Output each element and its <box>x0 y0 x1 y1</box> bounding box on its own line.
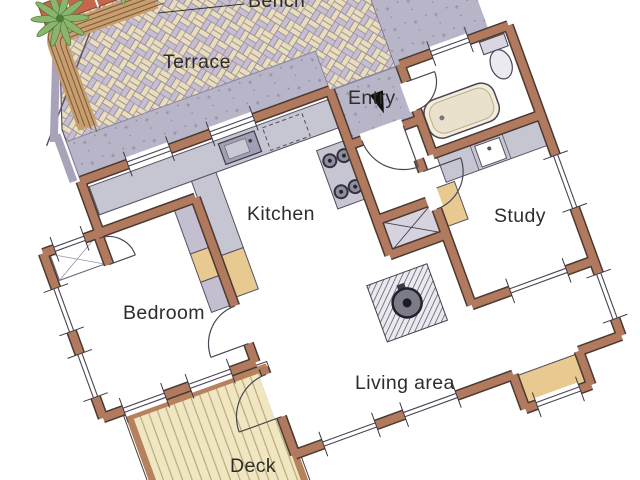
floor-plan-canvas: Bench Terrace Entry Kitchen Study Bedroo… <box>0 0 640 480</box>
rotated-plan <box>0 0 640 480</box>
room-label-bedroom: Bedroom <box>123 302 205 324</box>
room-label-deck: Deck <box>230 455 276 477</box>
room-label-entry: Entry <box>348 87 396 109</box>
floor-plan-page: Bench Terrace Entry Kitchen Study Bedroo… <box>0 0 640 480</box>
room-label-kitchen: Kitchen <box>247 203 315 225</box>
wood-stove <box>367 264 448 342</box>
room-label-bench: Bench <box>248 0 305 12</box>
room-label-living: Living area <box>355 372 455 394</box>
room-label-study: Study <box>494 205 546 227</box>
room-label-terrace: Terrace <box>163 51 231 73</box>
